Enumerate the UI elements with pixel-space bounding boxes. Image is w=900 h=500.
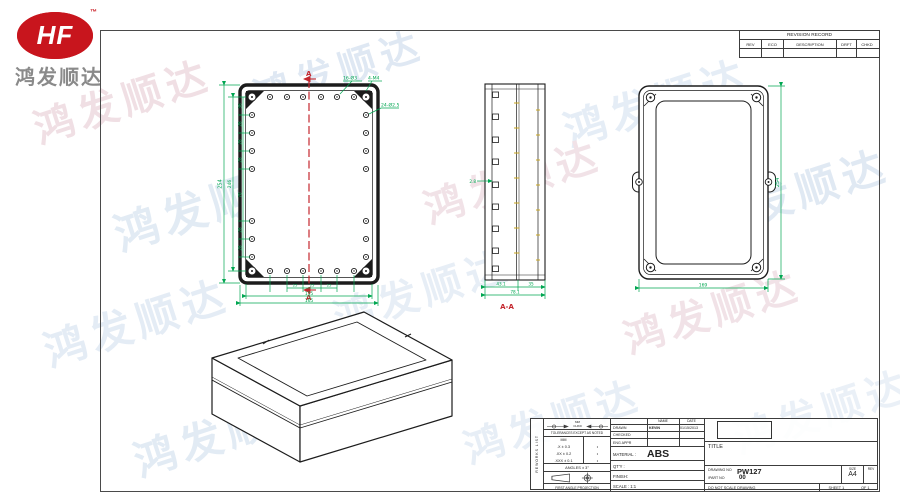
title-label: TITLE — [708, 444, 723, 450]
checked-label: CHECKED — [613, 433, 631, 437]
isometric-view — [212, 312, 452, 462]
customer-logo-box — [717, 421, 772, 439]
sheet-of-label: OF 1 — [861, 486, 869, 490]
angles-tolerance: ANGLES ± 3° — [544, 464, 611, 472]
revision-record-table: REVISION RECORD REV ECO DESCRIPTION DRFT… — [739, 30, 880, 58]
part-no-value: 00 — [739, 475, 746, 481]
revision-empty-cell — [784, 49, 837, 57]
svg-text:25: 25 — [310, 283, 315, 288]
svg-text:70: 70 — [238, 192, 243, 198]
symbol-mm-label: MM — [570, 420, 585, 424]
section-marker-top: A — [306, 70, 312, 78]
tolerance-row: .XX ± 0.2 — [544, 450, 583, 457]
material-label: MATERIAL : — [613, 452, 636, 457]
projection-symbol-row — [544, 472, 611, 484]
finish-label: FINISH: — [613, 474, 628, 479]
svg-text:28: 28 — [238, 227, 243, 233]
hole-note-3: 24-Ø2.5 — [381, 102, 400, 109]
hole-note-1: 16-Ø3 — [343, 75, 357, 82]
size-cell: SIZE A4 — [842, 466, 864, 483]
eng-appr-label: ENG APPR — [613, 441, 631, 445]
hole-note-2: 4-M4 — [368, 76, 380, 82]
drawing-no-label: DRAWING NO — [708, 468, 732, 472]
reworks-list-label: REWORKS LIST — [535, 435, 539, 473]
revision-col-eco: ECO — [762, 40, 784, 48]
back-view — [633, 86, 776, 279]
date-col-divider — [679, 419, 680, 447]
section-view-label: A-A — [500, 303, 514, 311]
svg-text:169: 169 — [699, 283, 708, 289]
drawn-date: 01/15/2013 — [680, 426, 698, 430]
revision-empty-cell — [857, 49, 877, 57]
svg-text:254: 254 — [218, 179, 224, 189]
name-col-divider — [647, 419, 648, 447]
drawing-sheet: 鸿发顺达 鸿发顺达 鸿发顺达 鸿发顺达 鸿发顺达 鸿发顺达 鸿发顺达 鸿发顺达 … — [0, 0, 900, 500]
svg-text:25: 25 — [327, 283, 332, 288]
svg-text:246: 246 — [227, 180, 233, 189]
reworks-list-strip: REWORKS LIST — [531, 419, 544, 489]
svg-text:25: 25 — [293, 283, 298, 288]
revision-col-drft: DRFT — [837, 40, 857, 48]
svg-text:43.1: 43.1 — [496, 282, 506, 287]
revision-col-rev: REV — [740, 40, 762, 48]
drawing-number-cell: DRAWING NO PW127 /PART NO 00 — [705, 466, 842, 483]
title-id-column: TITLE DRAWING NO PW127 /PART NO 00 SIZE … — [704, 419, 877, 491]
svg-text:165: 165 — [305, 298, 314, 304]
tolerances-note: TOLERANCES EXCEPT AS NOTED — [544, 430, 611, 437]
svg-text:28: 28 — [238, 121, 243, 127]
symbol-chkd-label: CHKD — [568, 424, 587, 428]
svg-text:28: 28 — [238, 139, 243, 145]
svg-text:78.1: 78.1 — [510, 290, 520, 295]
rev-cell: REV — [864, 466, 877, 483]
tolerance-row: .X ± 0.3 — [544, 443, 583, 450]
projection-label: FIRST ANGLE PROJECTION — [544, 484, 611, 491]
svg-text:155: 155 — [305, 291, 314, 297]
sheet-cell: SHEET 1 OF 1 — [820, 483, 877, 491]
tolerance-row: .XXX ± 0.1 — [544, 457, 583, 464]
drawn-label: DRAWN — [613, 426, 626, 430]
tolerance-mark: • — [584, 443, 611, 450]
svg-text:2.8: 2.8 — [469, 179, 476, 184]
revision-col-description: DESCRIPTION — [784, 40, 837, 48]
title-block: REWORKS LIST MM CHKD TOLERANCES EXCEPT A… — [530, 418, 878, 490]
do-not-scale-cell: DO NOT SCALE DRAWING — [705, 483, 820, 491]
qty-label: QT'Y : — [613, 464, 625, 469]
tolerance-table: MM .X ± 0.3 .XX ± 0.2 .XXX ± 0.1 • • • — [544, 437, 611, 464]
revision-col-chkd: CHKD — [857, 40, 877, 48]
svg-text:36: 36 — [238, 103, 243, 109]
revision-empty-cell — [837, 49, 857, 57]
sheet-label: SHEET 1 — [828, 486, 844, 490]
revision-empty-cell — [740, 49, 762, 57]
tolerance-mark: • — [584, 457, 611, 464]
scale-label: SCALE : 1:1 — [613, 484, 636, 489]
revision-table-title: REVISION RECORD — [740, 31, 879, 39]
drawn-name: KEVIN — [649, 426, 660, 430]
material-value: ABS — [647, 448, 669, 460]
name-header: NAME — [647, 419, 679, 423]
section-view — [485, 84, 545, 280]
tolerance-mark: • — [584, 450, 611, 457]
finish-symbol-row: MM CHKD — [544, 419, 611, 430]
svg-text:28: 28 — [238, 157, 243, 163]
svg-text:28: 28 — [238, 245, 243, 251]
do-not-scale-label: DO NOT SCALE DRAWING — [708, 486, 755, 490]
size-value: A4 — [842, 471, 863, 478]
part-no-label: /PART NO — [708, 476, 725, 480]
first-angle-projection-icon — [544, 472, 610, 484]
rev-label: REV — [864, 467, 877, 471]
svg-text:35: 35 — [528, 282, 534, 287]
svg-text:254: 254 — [775, 178, 781, 188]
approval-material-column: NAME DATE DRAWN KEVIN 01/15/2013 CHECKED… — [611, 419, 704, 491]
revision-empty-cell — [762, 49, 784, 57]
date-header: DATE — [679, 419, 704, 423]
